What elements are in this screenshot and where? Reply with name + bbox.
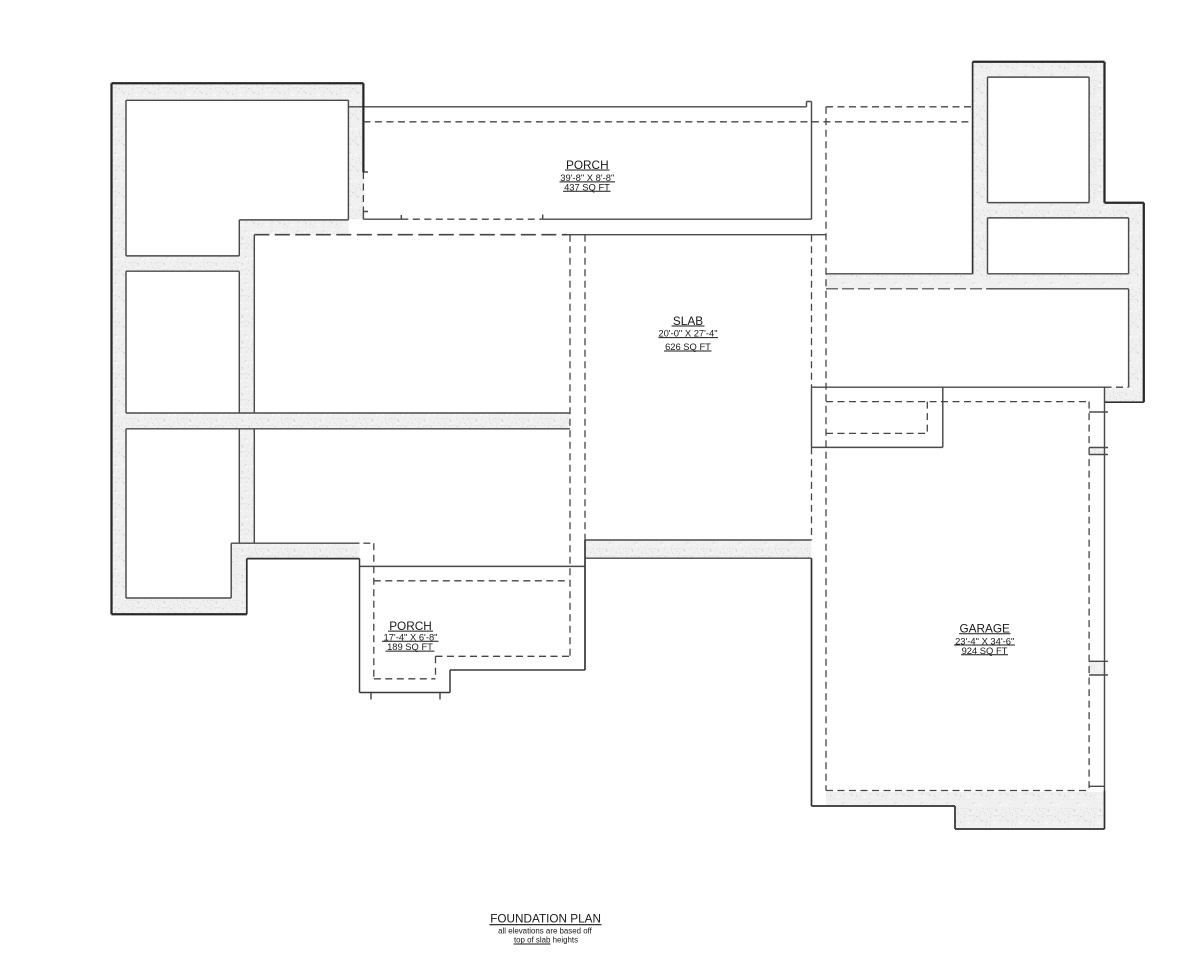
svg-text:924 SQ FT: 924 SQ FT: [962, 645, 1008, 656]
svg-text:GARAGE: GARAGE: [959, 622, 1010, 636]
svg-text:437 SQ FT: 437 SQ FT: [564, 181, 610, 192]
svg-text:FOUNDATION PLAN: FOUNDATION PLAN: [490, 913, 601, 926]
svg-text:189 SQ FT: 189 SQ FT: [387, 641, 433, 652]
svg-text:all elevations are based off: all elevations are based off: [498, 926, 593, 935]
svg-text:PORCH: PORCH: [566, 158, 609, 172]
svg-text:20'-0" X 27'-4": 20'-0" X 27'-4": [658, 328, 717, 339]
svg-text:626 SQ FT: 626 SQ FT: [665, 341, 711, 352]
svg-text:SLAB: SLAB: [673, 314, 703, 328]
svg-text:top of slab heights: top of slab heights: [514, 936, 578, 945]
